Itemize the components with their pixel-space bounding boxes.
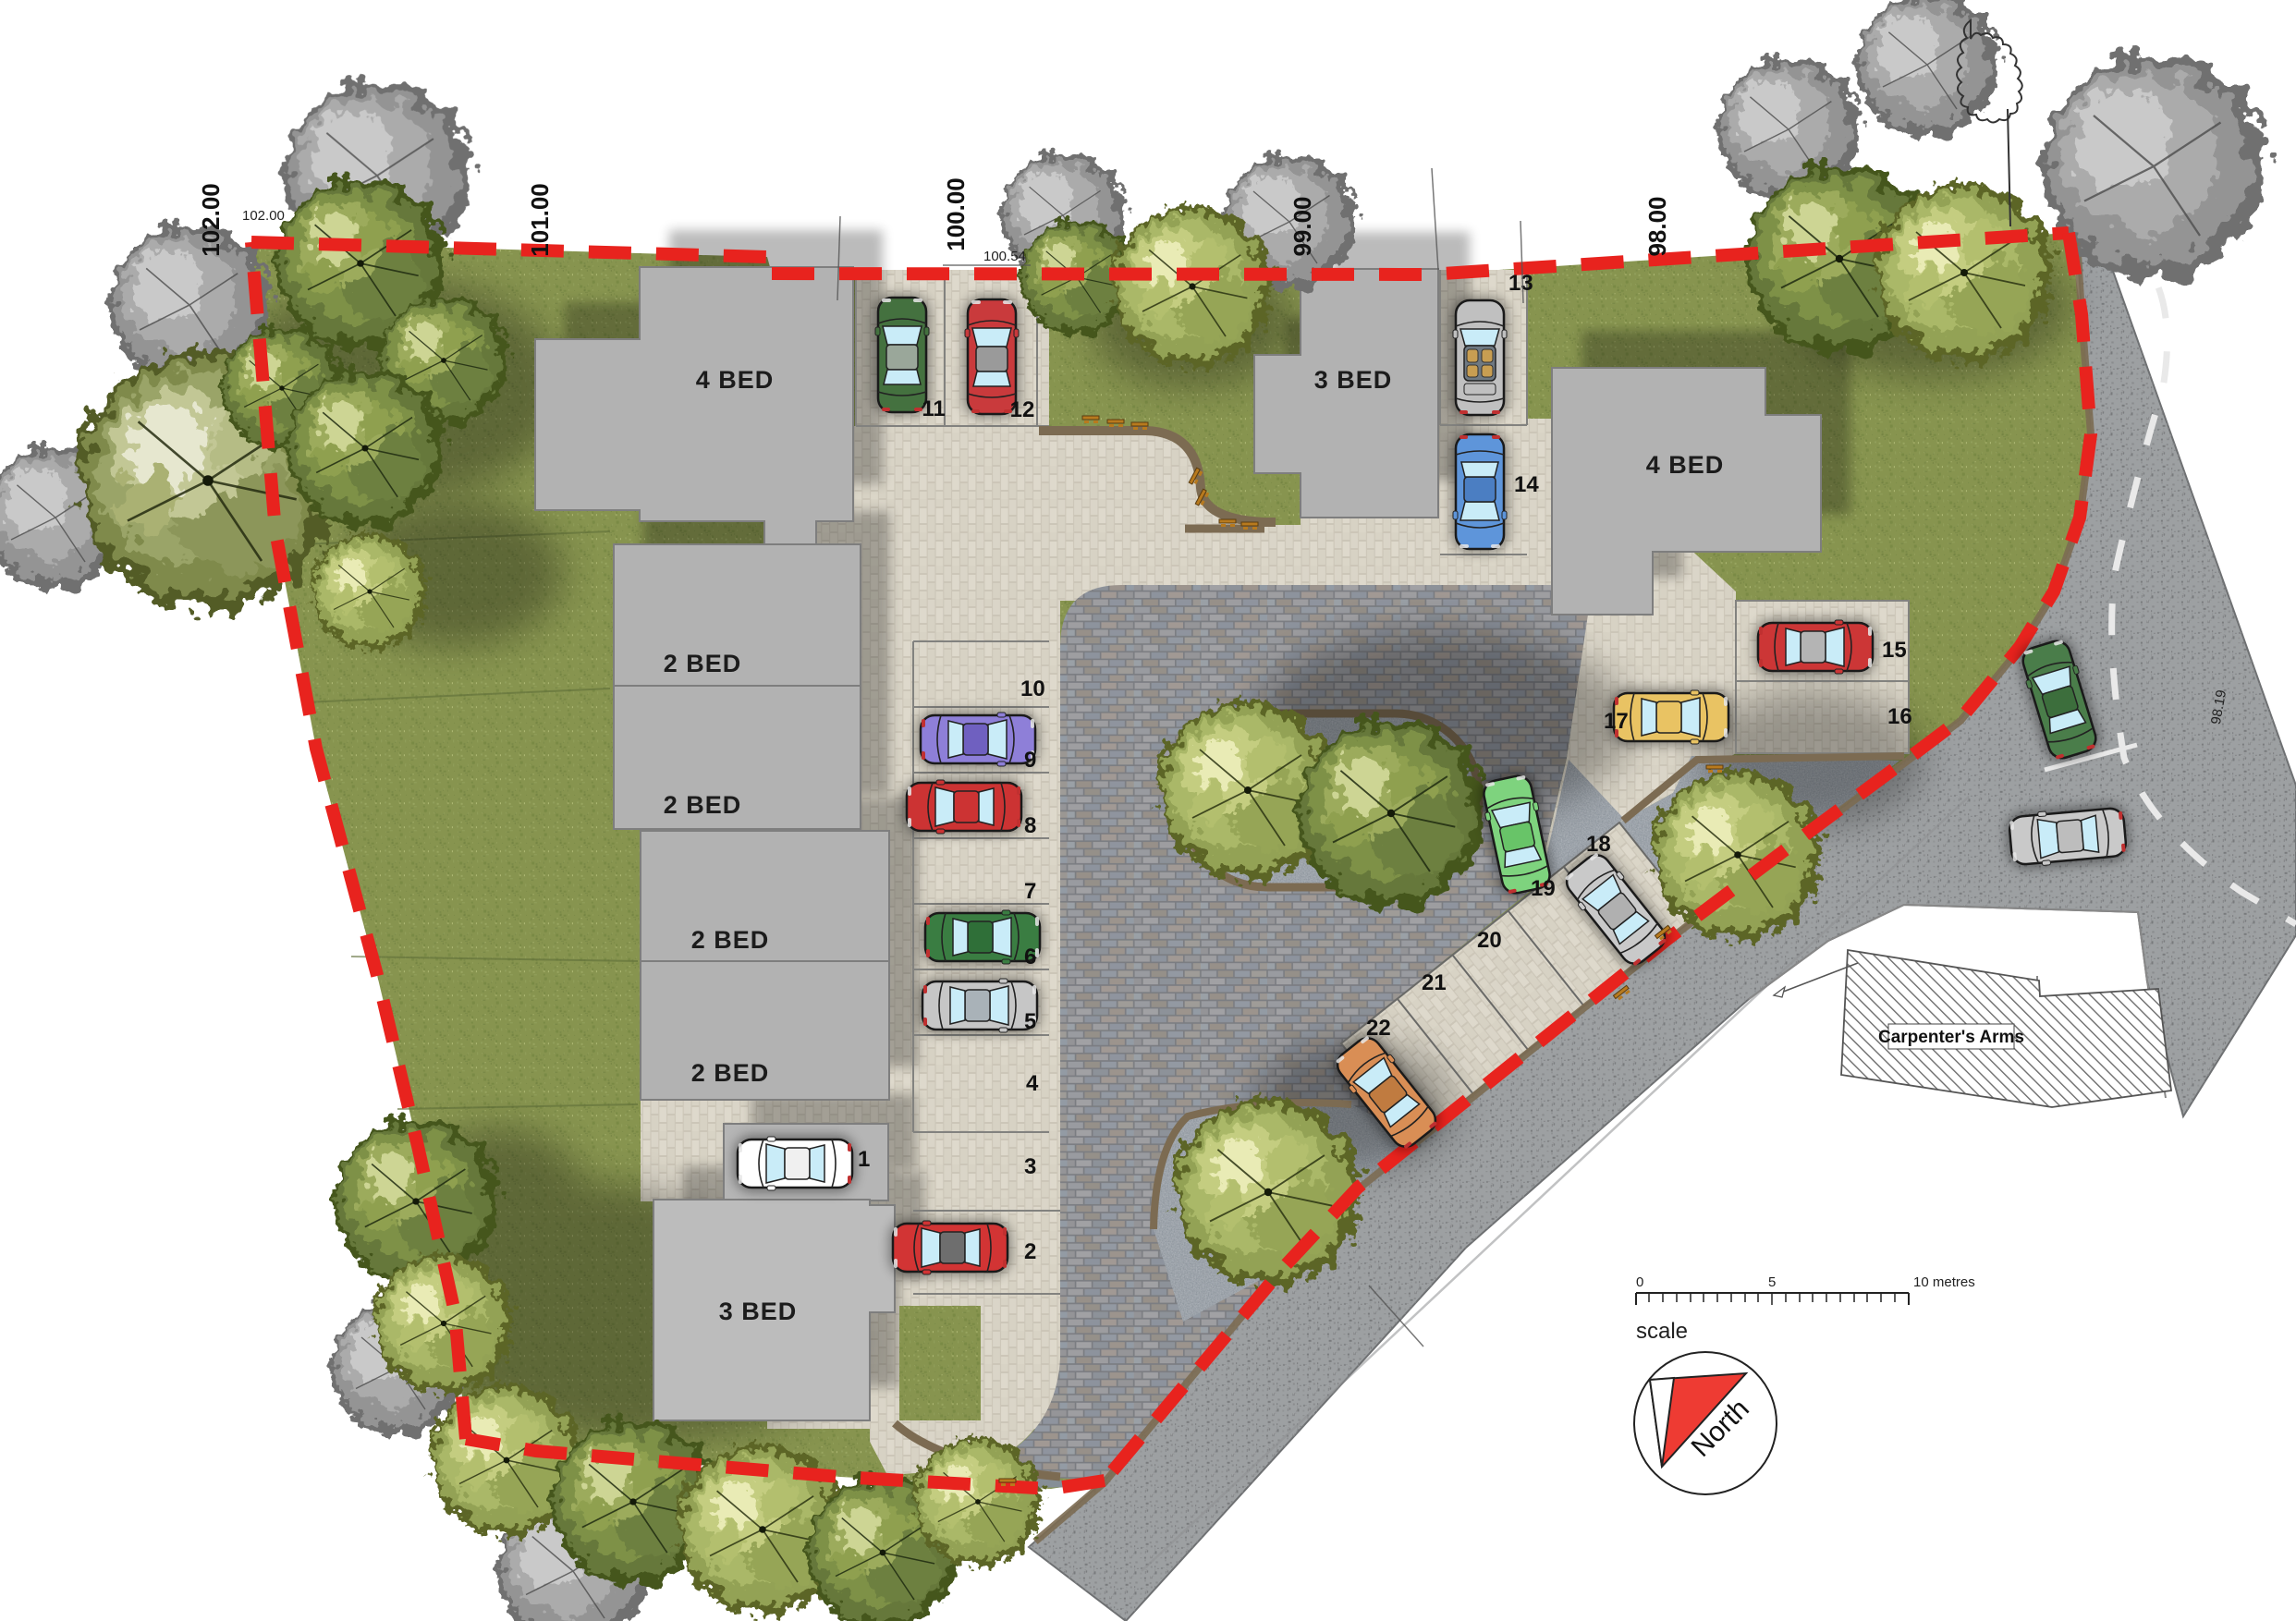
svg-text:6: 6 (1024, 945, 1036, 969)
svg-text:2: 2 (1024, 1239, 1036, 1264)
svg-text:102.00: 102.00 (197, 183, 225, 257)
svg-text:4: 4 (1026, 1071, 1039, 1096)
svg-text:5: 5 (1024, 1009, 1036, 1034)
svg-text:19: 19 (1531, 876, 1556, 901)
svg-text:99.00: 99.00 (1288, 196, 1316, 256)
svg-text:7: 7 (1024, 879, 1036, 904)
svg-text:scale: scale (1636, 1319, 1688, 1344)
svg-text:18: 18 (1586, 832, 1611, 857)
svg-text:101.00: 101.00 (526, 183, 554, 257)
svg-text:11: 11 (922, 396, 945, 421)
svg-text:20: 20 (1477, 928, 1502, 953)
svg-text:16: 16 (1887, 704, 1912, 729)
svg-text:100.54: 100.54 (983, 249, 1026, 264)
svg-text:10 metres: 10 metres (1913, 1274, 1975, 1290)
svg-text:1: 1 (858, 1147, 870, 1172)
svg-text:Carpenter's Arms: Carpenter's Arms (1878, 1028, 2024, 1047)
svg-text:17: 17 (1604, 709, 1629, 734)
svg-text:10: 10 (1020, 676, 1045, 701)
svg-text:8: 8 (1024, 813, 1036, 838)
svg-text:100.00: 100.00 (942, 177, 970, 251)
svg-text:4 BED: 4 BED (1646, 451, 1725, 479)
svg-text:98.00: 98.00 (1643, 196, 1671, 256)
svg-text:2 BED: 2 BED (664, 791, 742, 819)
svg-text:3 BED: 3 BED (719, 1298, 798, 1325)
svg-text:102.00: 102.00 (242, 208, 285, 224)
svg-text:2 BED: 2 BED (691, 1059, 770, 1087)
svg-text:21: 21 (1422, 970, 1447, 995)
svg-text:3 BED: 3 BED (1314, 366, 1393, 394)
svg-text:2 BED: 2 BED (691, 926, 770, 954)
svg-text:22: 22 (1366, 1016, 1391, 1041)
svg-text:5: 5 (1768, 1274, 1776, 1290)
svg-text:9: 9 (1024, 748, 1036, 773)
svg-text:0: 0 (1636, 1274, 1643, 1290)
svg-text:12: 12 (1010, 397, 1035, 422)
svg-text:13: 13 (1508, 271, 1533, 296)
svg-text:14: 14 (1514, 472, 1539, 497)
svg-text:2 BED: 2 BED (664, 650, 742, 677)
svg-text:15: 15 (1882, 638, 1907, 663)
svg-text:4 BED: 4 BED (696, 366, 775, 394)
svg-text:3: 3 (1024, 1154, 1036, 1179)
